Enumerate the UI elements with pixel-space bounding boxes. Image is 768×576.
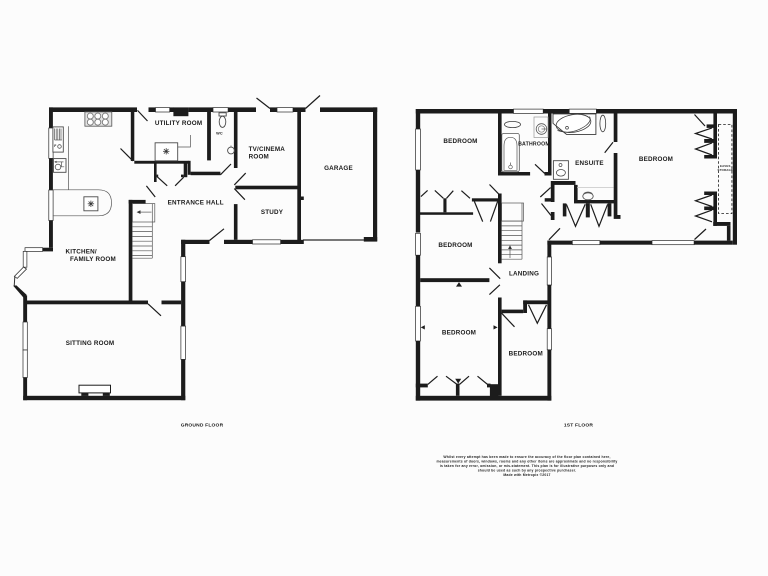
svg-text:TV/CINEMA: TV/CINEMA <box>249 146 286 153</box>
svg-text:ENSUITE: ENSUITE <box>575 160 604 167</box>
svg-text:BATHROOM: BATHROOM <box>518 141 550 147</box>
svg-text:is taken for any error, omissi: is taken for any error, omission, or mis… <box>440 464 614 468</box>
svg-text:BEDROOM: BEDROOM <box>442 330 476 337</box>
svg-text:STORAGE: STORAGE <box>717 168 733 172</box>
svg-text:BEDROOM: BEDROOM <box>509 350 543 357</box>
svg-text:UTILITY ROOM: UTILITY ROOM <box>155 120 202 127</box>
svg-text:LANDING: LANDING <box>509 271 539 278</box>
svg-text:ROOM: ROOM <box>249 154 269 161</box>
svg-text:STUDY: STUDY <box>261 209 284 216</box>
svg-text:SITTING ROOM: SITTING ROOM <box>66 340 115 347</box>
svg-text:Whilst every attempt has been: Whilst every attempt has been made to en… <box>443 455 610 459</box>
svg-text:BEDROOM: BEDROOM <box>438 242 472 249</box>
svg-text:1ST FLOOR: 1ST FLOOR <box>564 423 594 429</box>
svg-text:measurements of doors, windows: measurements of doors, windows, rooms an… <box>436 459 617 463</box>
svg-text:FAMILY ROOM: FAMILY ROOM <box>70 256 116 263</box>
svg-text:GROUND FLOOR: GROUND FLOOR <box>181 422 224 428</box>
svg-text:Made with Metropix ©2017: Made with Metropix ©2017 <box>503 473 550 477</box>
svg-text:BEDROOM: BEDROOM <box>443 138 477 145</box>
svg-text:WC: WC <box>216 132 223 136</box>
svg-text:F: F <box>54 144 56 148</box>
svg-text:should be used as such by any: should be used as such by any prospectiv… <box>478 469 577 473</box>
svg-text:BEDROOM: BEDROOM <box>639 156 673 163</box>
svg-text:ENTRANCE HALL: ENTRANCE HALL <box>168 199 224 206</box>
svg-text:KITCHEN/: KITCHEN/ <box>66 248 97 255</box>
svg-text:GARAGE: GARAGE <box>324 165 353 172</box>
